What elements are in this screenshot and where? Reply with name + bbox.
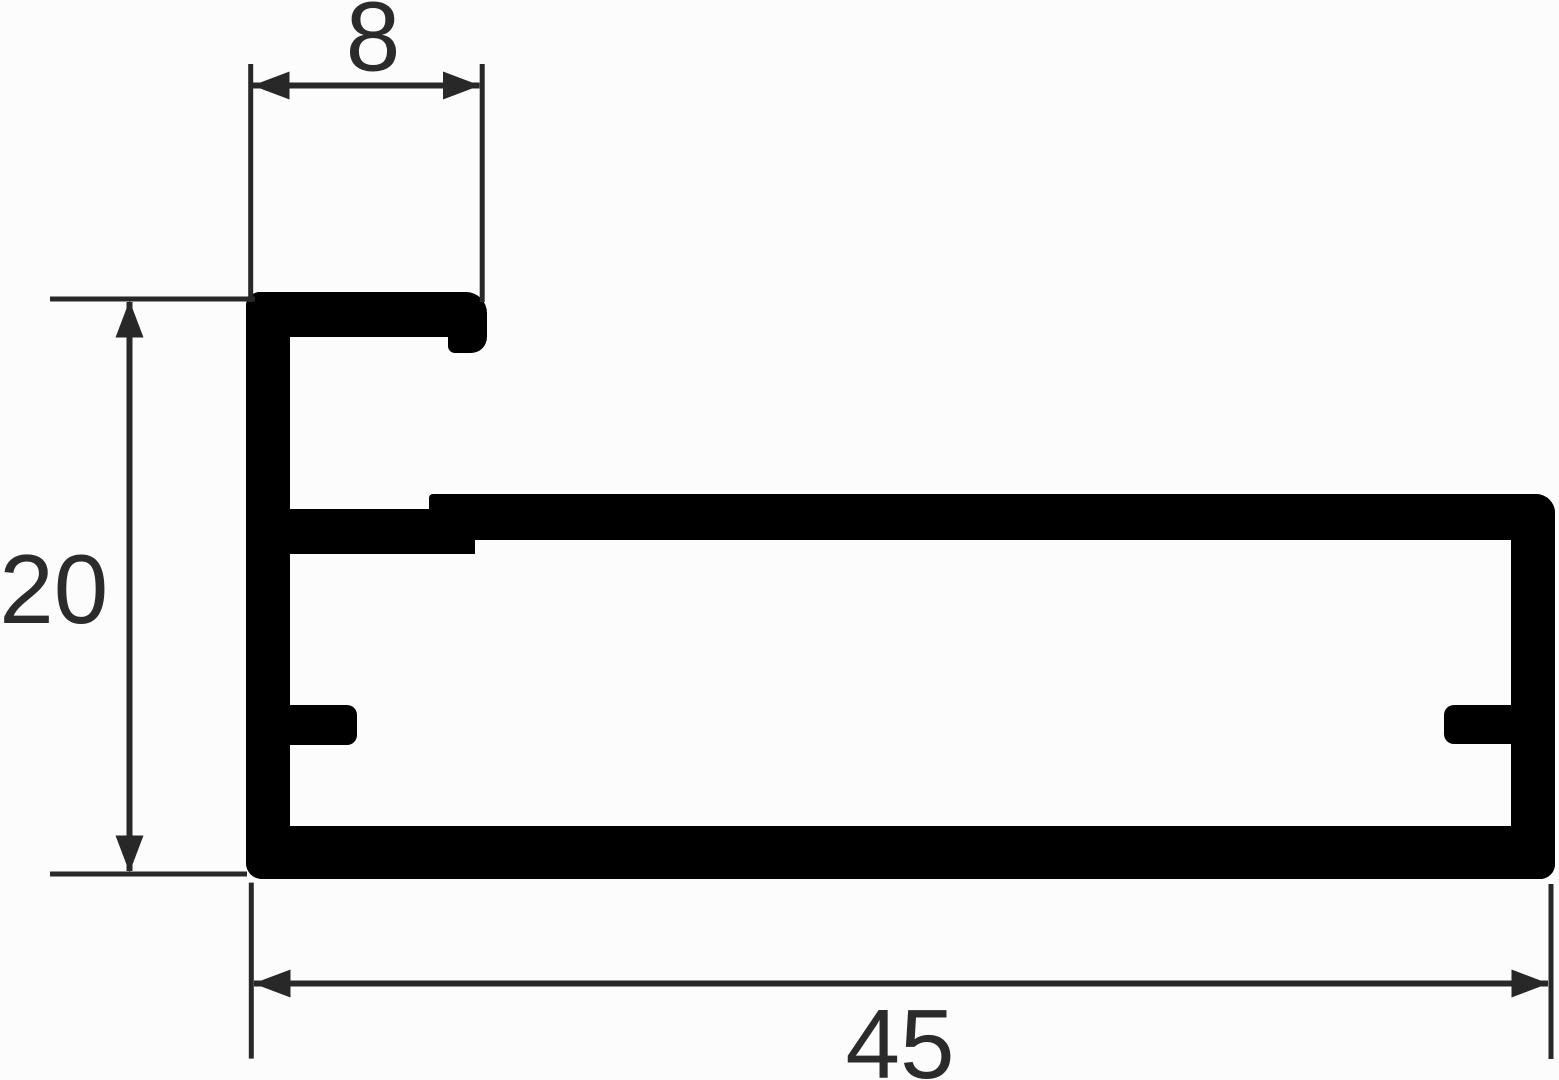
svg-text:8: 8 [346, 0, 401, 92]
svg-text:45: 45 [845, 989, 954, 1080]
svg-text:20: 20 [0, 534, 108, 644]
